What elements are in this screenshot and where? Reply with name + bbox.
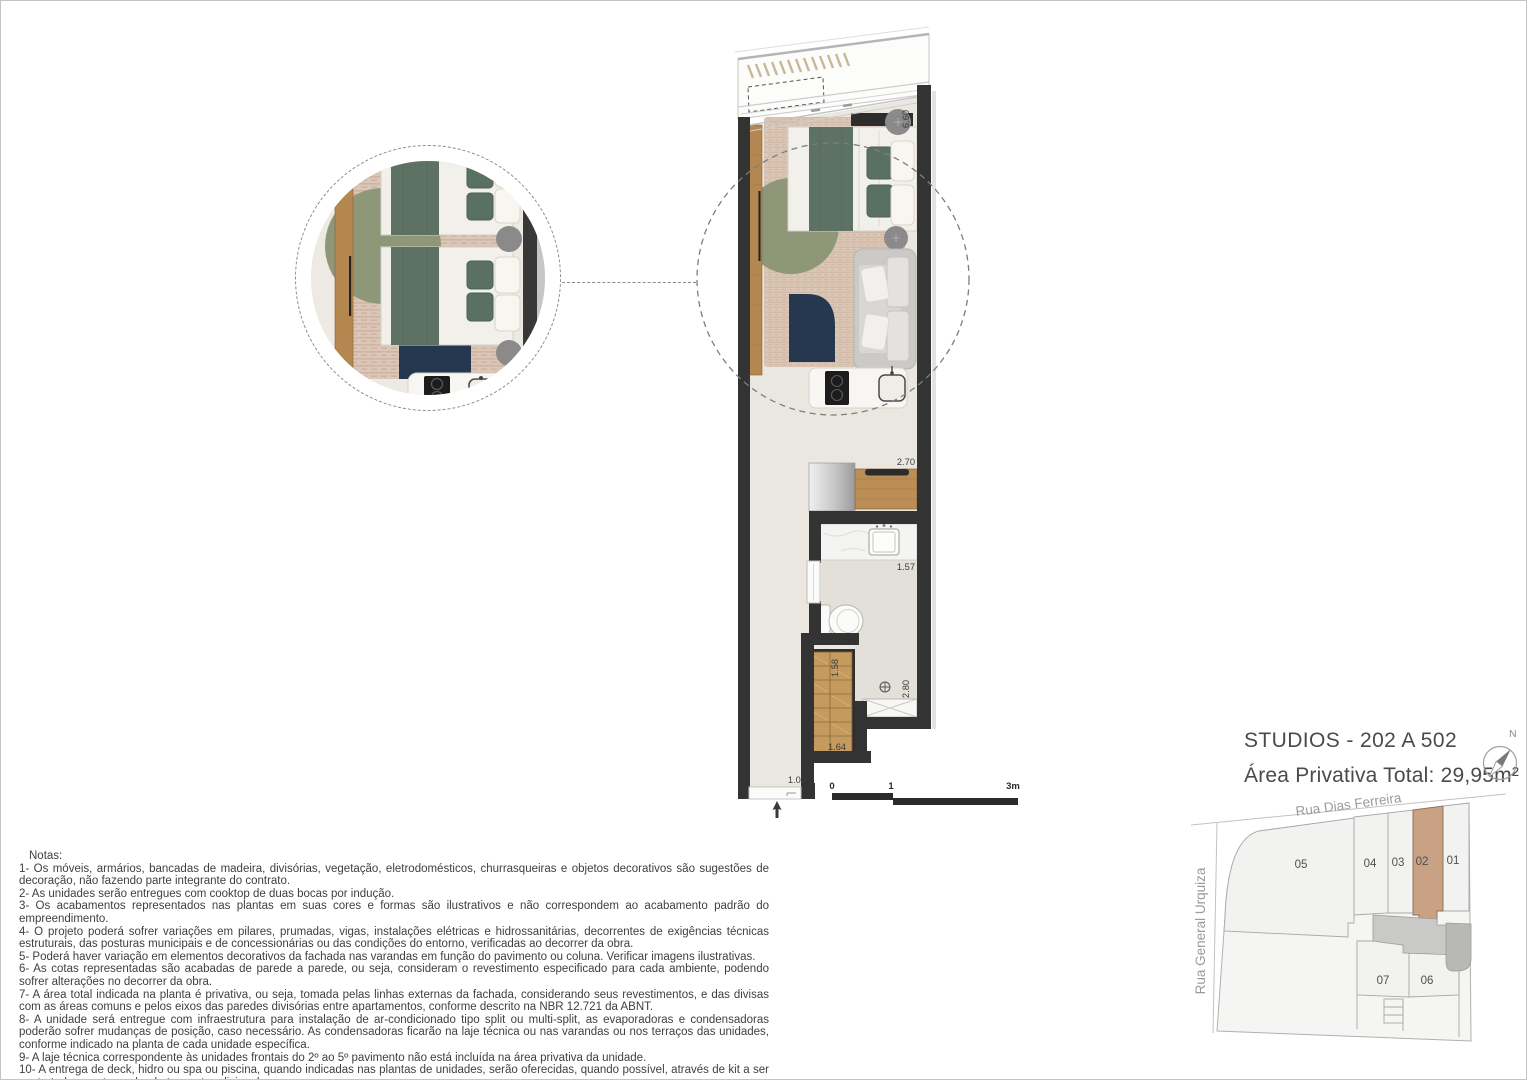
note-item-4: 4- O projeto poderá sofrer variações em … <box>19 926 769 951</box>
note-item-6: 6- As cotas representadas são acabadas d… <box>19 963 769 988</box>
dim-bath-counter: 1.57 <box>897 562 915 572</box>
detail-pouf-1 <box>496 226 522 252</box>
keyplan: Rua Dias Ferreira Rua General Urquiza 05… <box>1191 791 1527 1080</box>
dim-closet-side: 1.58 <box>830 659 840 677</box>
cooktop <box>825 371 849 405</box>
title-block: STUDIOS - 202 A 502 Área Privativa Total… <box>1244 723 1519 793</box>
notes-block: Notas: 1- Os móveis, armários, bancadas … <box>19 850 769 1080</box>
page-title: STUDIOS - 202 A 502 <box>1244 723 1519 758</box>
dim-bath-length: 2.80 <box>901 680 911 698</box>
unit-label-06: 06 <box>1421 975 1434 987</box>
note-item-7: 7- A área total indicada na planta é pri… <box>19 989 769 1014</box>
unit-cell-07 <box>1357 941 1409 997</box>
sofa <box>854 249 916 369</box>
note-item-8: 8- A unidade será entregue com infraestr… <box>19 1014 769 1052</box>
detail-zoom-circle <box>311 161 545 395</box>
floor-plan: 6.60 2.70 1.57 1.58 1.64 2.80 1.00 0 1 3… <box>691 21 1041 831</box>
detail-bed-2 <box>381 247 520 345</box>
scale-bar: 0 1 3m <box>829 781 1020 805</box>
scale-tick-1: 1 <box>888 781 894 792</box>
note-item-5: 5- Poderá haver variação em elementos de… <box>19 951 769 964</box>
kitchen-cabinet <box>855 469 917 509</box>
entry-arrow-icon <box>773 801 782 818</box>
notes-heading: Notas: <box>19 850 769 863</box>
scale-tick-0: 0 <box>829 781 834 792</box>
north-compass-icon: N <box>1479 723 1525 787</box>
note-item-1: 1- Os móveis, armários, bancadas de made… <box>19 863 769 888</box>
floor-plan-sheet: 6.60 2.70 1.57 1.58 1.64 2.80 1.00 0 1 3… <box>0 0 1527 1080</box>
bath-counter <box>819 524 917 560</box>
dim-entry-door: 1.00 <box>788 775 806 785</box>
common-area-right <box>1446 923 1471 971</box>
north-label: N <box>1509 728 1517 740</box>
fridge <box>809 463 855 511</box>
unit-cell-05 <box>1224 818 1354 937</box>
dim-total-height: 6.60 <box>901 110 911 128</box>
unit-label-04: 04 <box>1364 858 1377 870</box>
dim-kitchen-counter: 2.70 <box>897 457 915 467</box>
private-area-label: Área Privativa Total: 29,95m² <box>1244 758 1519 793</box>
scale-tick-3m: 3m <box>1006 781 1020 792</box>
detail-connector-line <box>562 282 696 283</box>
navy-rug <box>789 294 835 362</box>
detail-scene <box>311 161 545 395</box>
note-item-10: 10- A entrega de deck, hidro ou spa ou p… <box>19 1064 769 1080</box>
unit-label-01: 01 <box>1447 855 1460 867</box>
note-item-9: 9- A laje técnica correspondente às unid… <box>19 1052 769 1065</box>
street-label-left: Rua General Urquiza <box>1193 867 1208 994</box>
note-item-3: 3- Os acabamentos representados nas plan… <box>19 900 769 925</box>
note-item-2: 2- As unidades serão entregues com cookt… <box>19 888 769 901</box>
dim-closet-front: 1.64 <box>828 742 846 752</box>
unit-label-02: 02 <box>1416 856 1429 868</box>
unit-label-05: 05 <box>1295 859 1308 871</box>
unit-label-07: 07 <box>1377 975 1390 987</box>
unit-label-03: 03 <box>1392 857 1405 869</box>
